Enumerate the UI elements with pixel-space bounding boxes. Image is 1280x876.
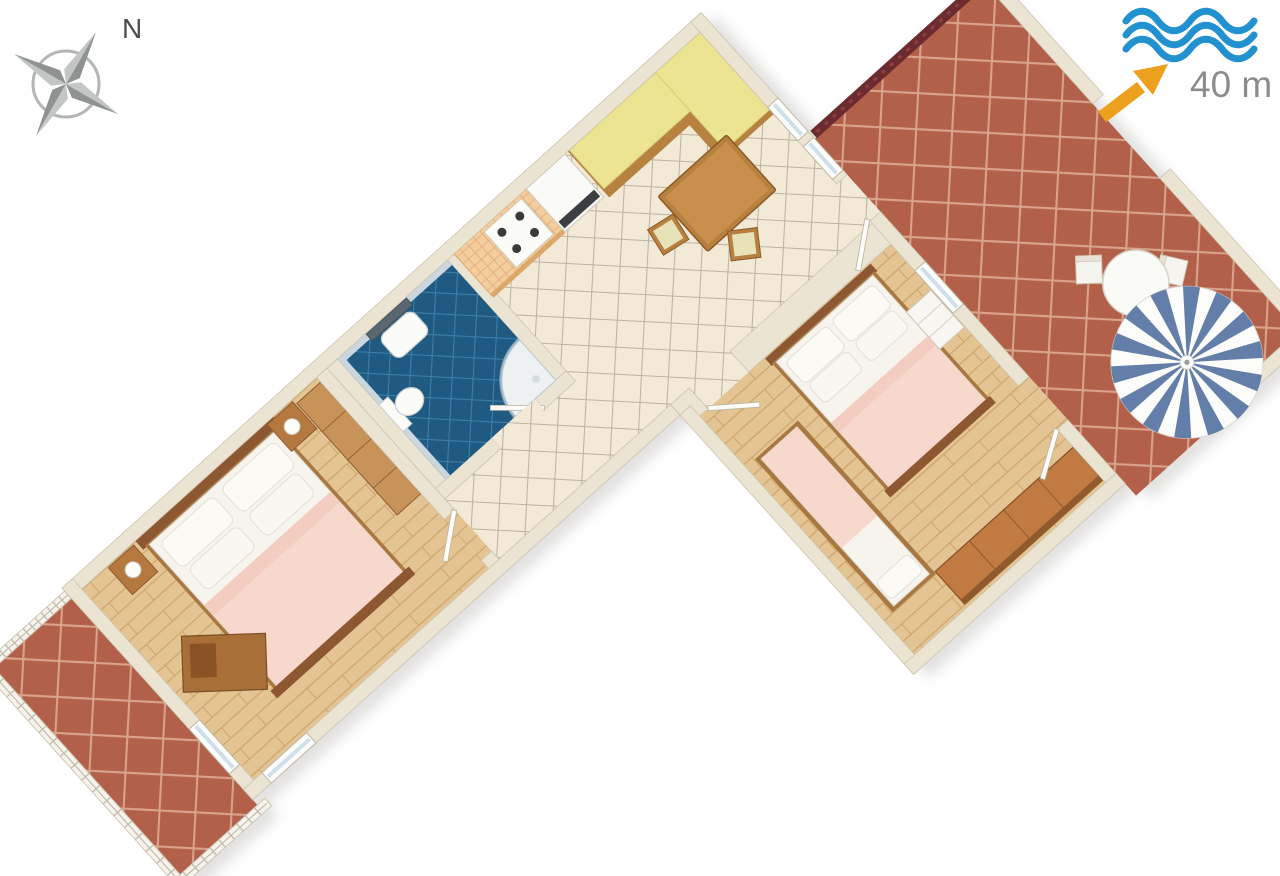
- north-label: N: [122, 13, 142, 44]
- apartment-plan: [0, 0, 1280, 876]
- compass-rose-icon: N: [0, 2, 148, 166]
- distance-label: 40 m: [1190, 64, 1272, 105]
- beach-distance-legend: 40 m: [1102, 11, 1272, 117]
- terrace-chair: [1075, 255, 1102, 284]
- floor-plan-image: N 40 m: [0, 0, 1280, 876]
- direction-arrow-icon: [1102, 64, 1168, 117]
- dining-chair: [727, 228, 760, 261]
- sea-waves-icon: [1126, 11, 1254, 59]
- floor-plan-svg: N 40 m: [0, 0, 1280, 876]
- desk: [181, 633, 267, 692]
